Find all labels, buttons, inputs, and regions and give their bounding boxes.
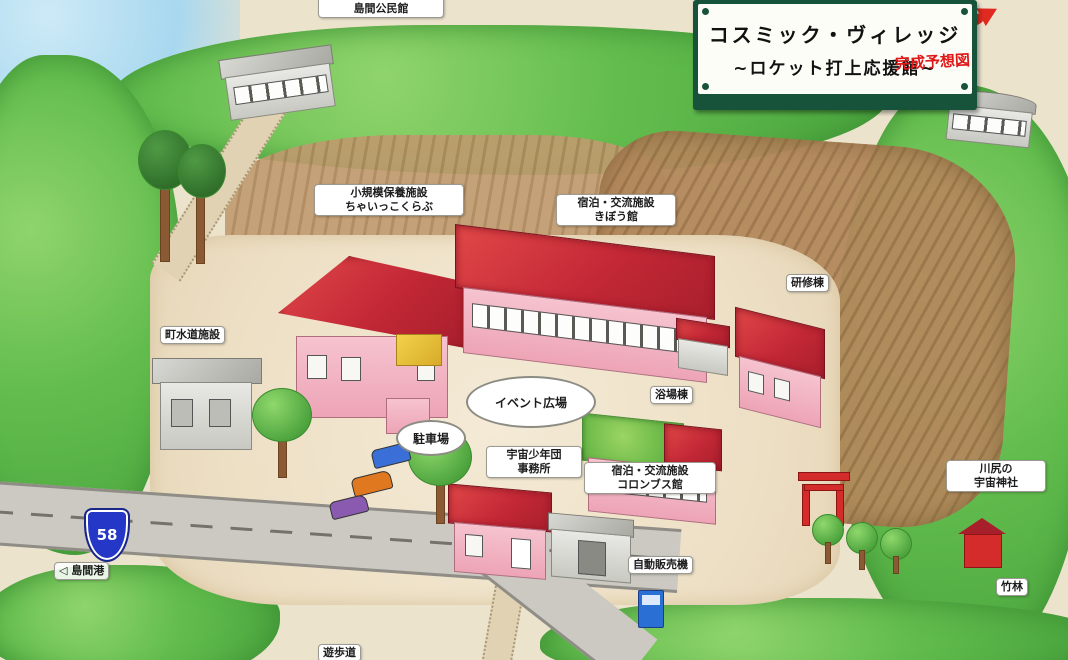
water-facility-building — [152, 358, 260, 458]
label-parking: 駐車場 — [396, 420, 466, 456]
tall-trees — [138, 130, 228, 270]
bath-building — [676, 318, 730, 379]
storage-shed — [548, 512, 632, 587]
label-water-facility: 町水道施設 — [160, 326, 225, 344]
label-vending-machine: 自動販売機 — [628, 556, 693, 574]
label-youth-office: 宇宙少年団 事務所 — [486, 446, 582, 478]
label-kibou-hall: 宿泊・交流施設 きぼう館 — [556, 194, 676, 226]
vending-machine-icon — [638, 590, 664, 628]
training-building — [735, 307, 825, 437]
label-event-plaza: イベント広場 — [466, 376, 596, 428]
label-bamboo-grove: 竹林 — [996, 578, 1028, 596]
courtyard-tree-1 — [252, 388, 312, 478]
label-port-direction: ◁ 島間港 — [54, 562, 109, 580]
shrine-building — [958, 518, 1006, 570]
signboard-face: コスミック・ヴィレッジ ~ロケット打上応援館~ 完成予想図 — [698, 4, 972, 94]
illustrated-map: コスミック・ヴィレッジ ~ロケット打上応援館~ 完成予想図 集会施設 島間公民館… — [0, 0, 1068, 660]
title-signboard: コスミック・ヴィレッジ ~ロケット打上応援館~ 完成予想図 — [693, 0, 977, 110]
label-community-center: 集会施設 島間公民館 — [318, 0, 444, 18]
label-bath-bldg: 浴場棟 — [650, 386, 693, 404]
label-space-shrine: 川尻の 宇宙神社 — [946, 460, 1046, 492]
sign-title: コスミック・ヴィレッジ — [709, 19, 962, 48]
label-small-lodge: 小規模保養施設 ちゃいっこくらぶ — [314, 184, 464, 216]
kibou-hall-building — [455, 224, 715, 406]
label-promenade: 遊歩道 — [318, 644, 361, 660]
sign-stamp: 完成予想図 — [894, 49, 970, 74]
lodge-awning — [396, 334, 442, 366]
label-training-bldg: 研修棟 — [786, 274, 829, 292]
small-tree-row — [812, 508, 922, 568]
label-columbus-hall: 宿泊・交流施設 コロンブス館 — [584, 462, 716, 494]
